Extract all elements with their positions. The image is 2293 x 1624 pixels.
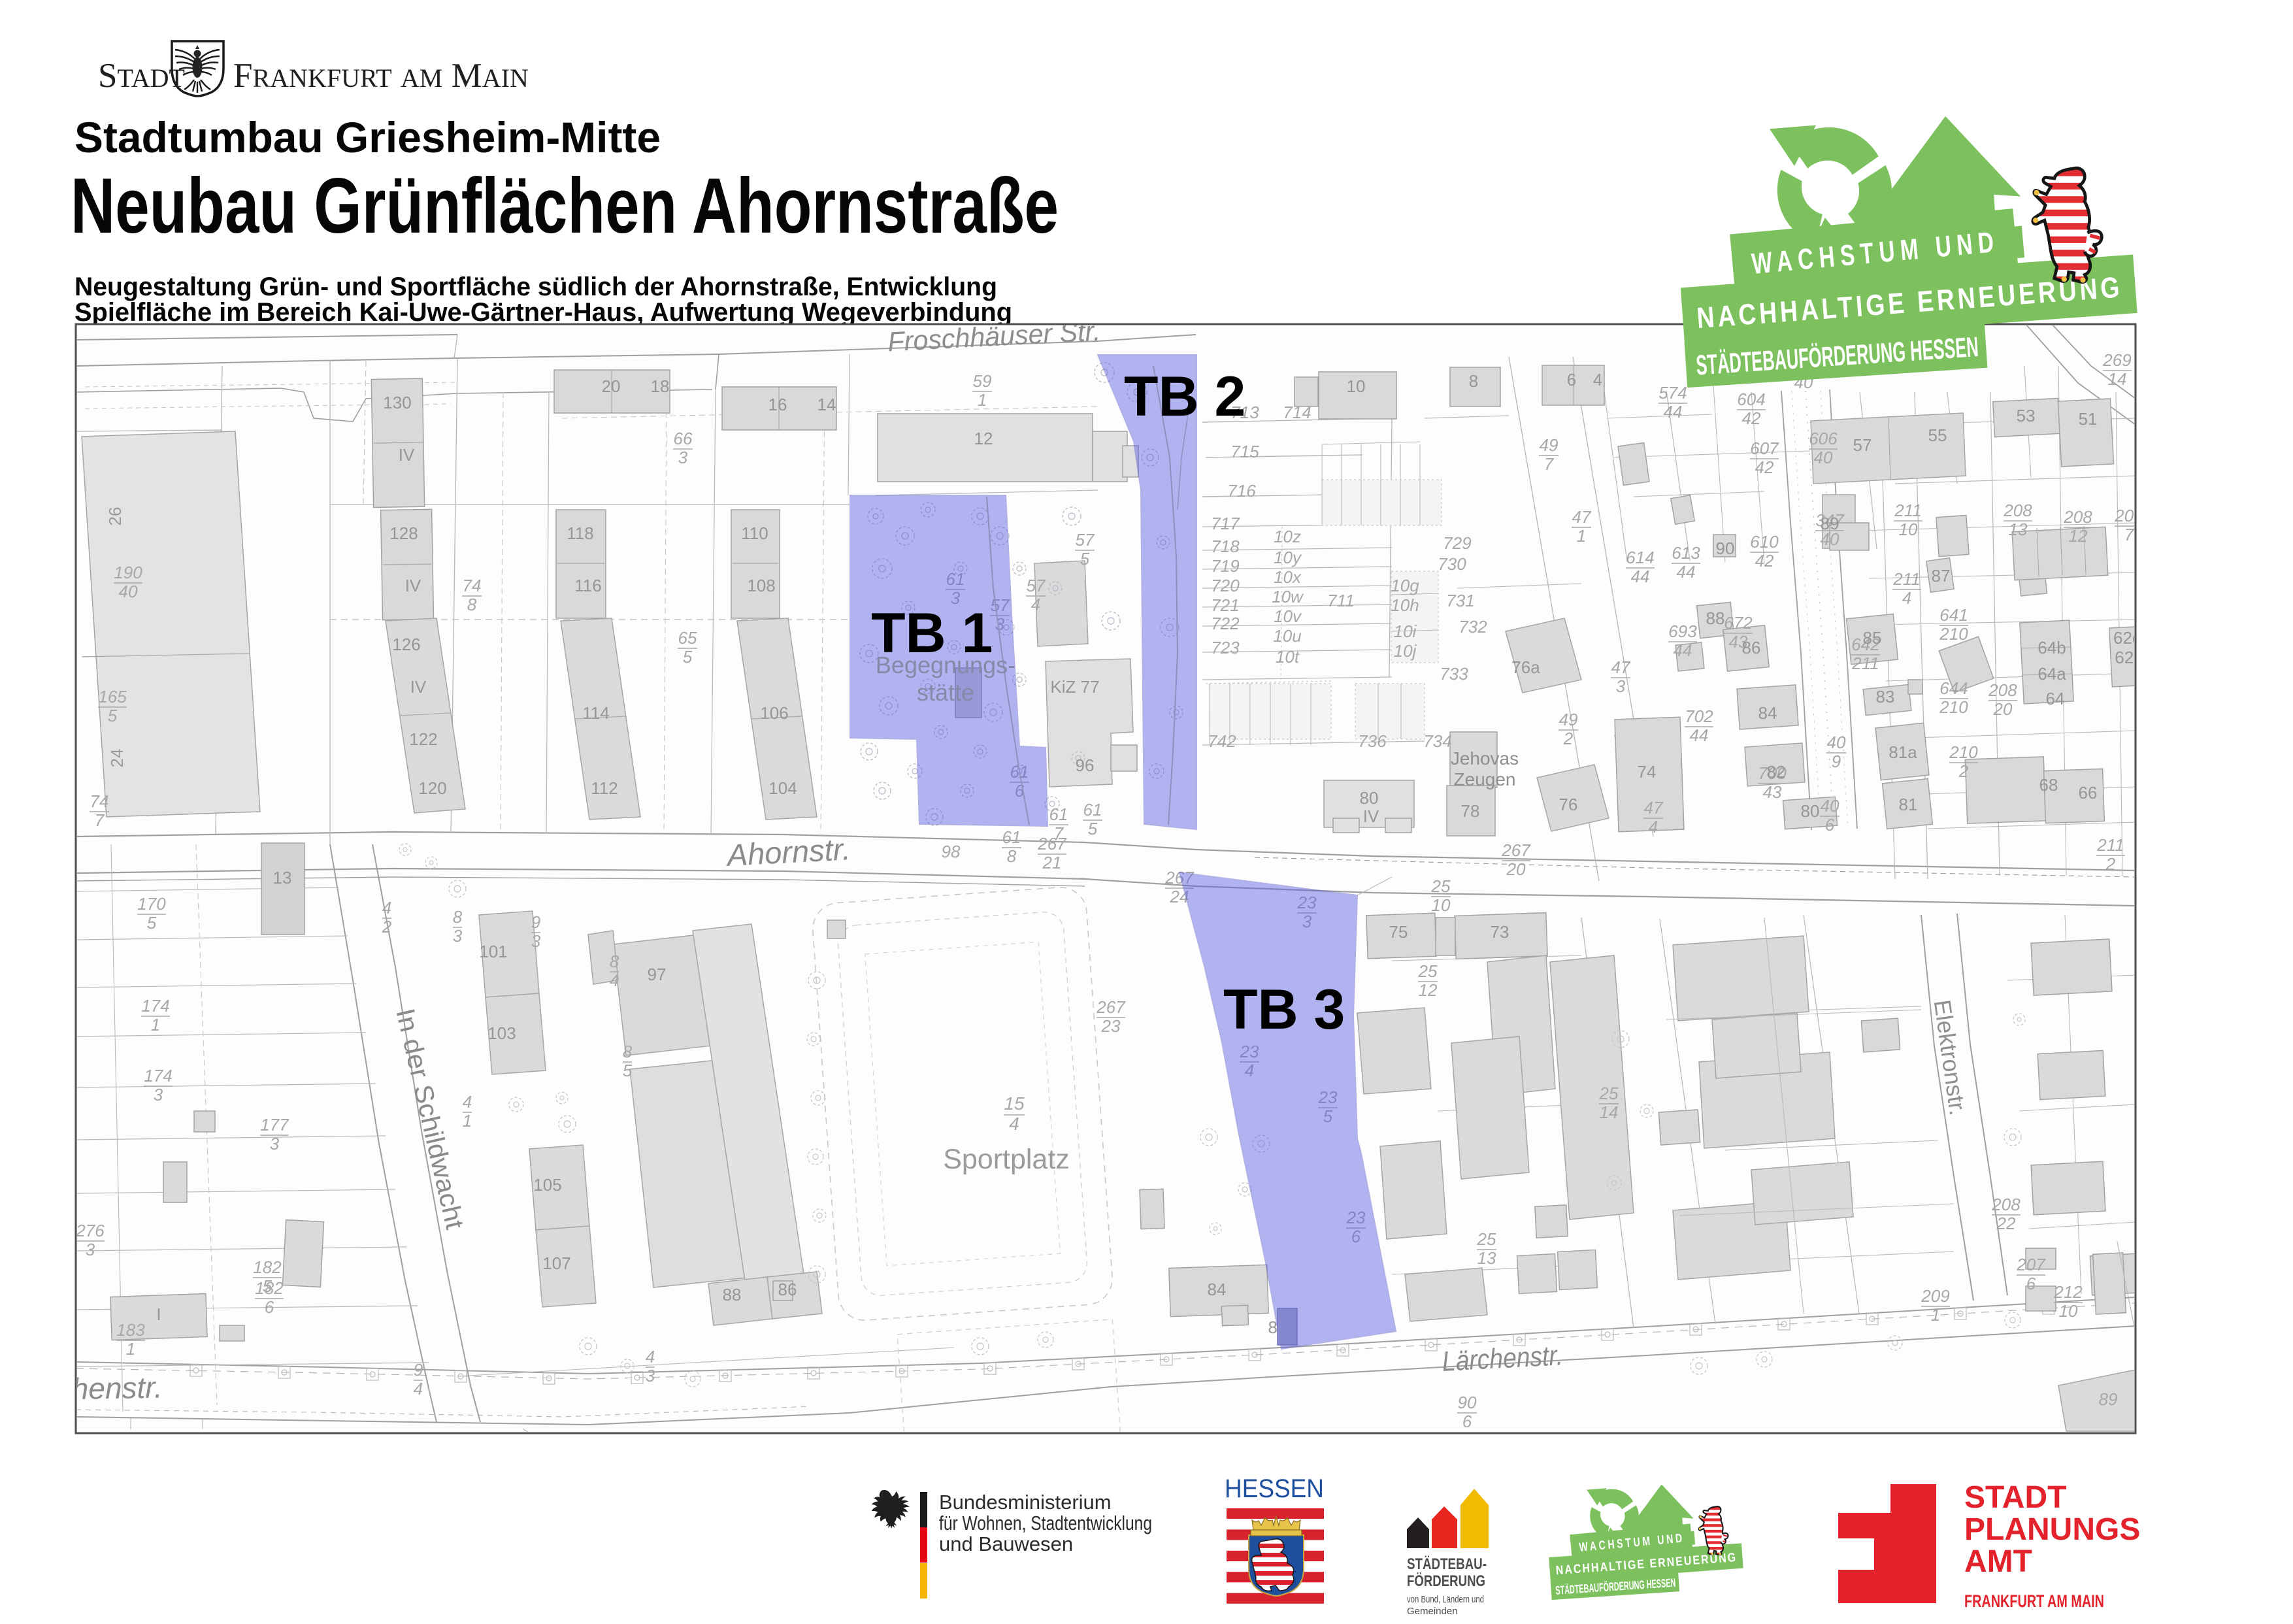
- svg-text:90: 90: [1458, 1393, 1477, 1412]
- svg-text:68: 68: [2039, 775, 2058, 795]
- svg-text:10x: 10x: [1274, 567, 1302, 587]
- svg-text:47: 47: [1611, 657, 1631, 677]
- svg-text:7: 7: [95, 810, 105, 830]
- svg-text:8: 8: [1469, 371, 1478, 391]
- svg-text:733: 733: [1440, 664, 1468, 684]
- svg-text:208: 208: [2063, 507, 2092, 527]
- svg-text:6: 6: [1462, 1412, 1472, 1431]
- svg-text:190: 190: [114, 563, 142, 582]
- svg-text:Zeugen: Zeugen: [1454, 769, 1516, 789]
- svg-text:75: 75: [1389, 922, 1408, 942]
- svg-text:64: 64: [2046, 689, 2065, 708]
- svg-text:64b: 64b: [2037, 638, 2066, 657]
- svg-text:TB 2: TB 2: [1124, 365, 1245, 428]
- svg-text:84: 84: [1758, 703, 1777, 723]
- svg-text:122: 122: [409, 729, 437, 749]
- svg-text:49: 49: [1540, 435, 1559, 455]
- svg-text:20: 20: [1506, 859, 1526, 879]
- svg-text:86: 86: [1742, 638, 1761, 657]
- svg-text:4: 4: [463, 1092, 472, 1112]
- svg-text:10: 10: [1432, 895, 1451, 915]
- svg-text:112: 112: [591, 778, 618, 798]
- svg-text:22: 22: [1996, 1214, 2016, 1233]
- svg-text:641: 641: [1939, 605, 1968, 625]
- svg-text:104: 104: [768, 778, 797, 798]
- svg-text:702: 702: [1685, 706, 1713, 726]
- svg-text:3: 3: [531, 931, 541, 951]
- svg-text:574: 574: [1658, 383, 1687, 403]
- svg-text:Ahornstr.: Ahornstr.: [724, 831, 851, 872]
- svg-text:604: 604: [1737, 389, 1765, 409]
- svg-text:65: 65: [678, 628, 697, 648]
- svg-text:4: 4: [1009, 1114, 1019, 1134]
- svg-text:716: 716: [1227, 481, 1256, 501]
- svg-text:742: 742: [1208, 731, 1236, 751]
- svg-text:87: 87: [1932, 566, 1951, 586]
- svg-text:Stadtumbau Griesheim-Mitte: Stadtumbau Griesheim-Mitte: [74, 113, 661, 161]
- svg-text:IV: IV: [405, 576, 421, 595]
- svg-text:57: 57: [1027, 576, 1046, 595]
- svg-text:8: 8: [610, 952, 619, 971]
- svg-text:209: 209: [1921, 1286, 1949, 1306]
- svg-text:211: 211: [1851, 654, 1879, 673]
- svg-text:128: 128: [389, 523, 418, 543]
- svg-text:610: 610: [1750, 532, 1779, 552]
- svg-text:4: 4: [382, 898, 391, 918]
- svg-text:44: 44: [1664, 402, 1683, 422]
- svg-text:74: 74: [463, 576, 482, 595]
- svg-text:267: 267: [1501, 840, 1531, 860]
- svg-text:729: 729: [1443, 533, 1471, 553]
- svg-text:49: 49: [1559, 710, 1578, 729]
- svg-text:12: 12: [1419, 980, 1438, 1000]
- svg-text:5: 5: [623, 1061, 633, 1080]
- svg-text:3: 3: [86, 1240, 95, 1259]
- svg-text:88: 88: [1706, 608, 1725, 628]
- svg-text:8: 8: [453, 907, 463, 927]
- svg-text:88: 88: [723, 1285, 742, 1304]
- svg-text:14: 14: [1600, 1102, 1619, 1122]
- svg-text:20: 20: [1993, 699, 2013, 719]
- svg-text:42: 42: [1742, 408, 1761, 428]
- svg-text:1: 1: [126, 1339, 135, 1359]
- svg-text:40: 40: [1814, 448, 1833, 467]
- svg-text:89: 89: [2099, 1389, 2118, 1409]
- svg-text:20: 20: [602, 376, 621, 396]
- svg-text:12: 12: [974, 429, 993, 448]
- svg-text:8: 8: [1007, 846, 1017, 866]
- svg-text:208: 208: [2003, 501, 2032, 520]
- svg-text:719: 719: [1211, 556, 1239, 576]
- svg-text:5: 5: [1080, 549, 1090, 569]
- svg-text:44: 44: [1674, 640, 1692, 660]
- svg-text:40: 40: [1821, 796, 1839, 816]
- svg-text:211: 211: [2096, 835, 2124, 855]
- svg-text:80: 80: [1801, 801, 1820, 821]
- svg-text:183: 183: [116, 1320, 145, 1340]
- svg-text:13: 13: [1477, 1248, 1496, 1268]
- svg-text:76a: 76a: [1511, 657, 1540, 677]
- svg-text:55: 55: [1928, 425, 1947, 445]
- svg-text:5: 5: [683, 647, 693, 667]
- svg-text:734: 734: [1423, 731, 1451, 751]
- svg-text:90: 90: [1716, 539, 1735, 558]
- svg-text:57: 57: [1853, 435, 1872, 455]
- svg-text:207: 207: [2016, 1255, 2046, 1274]
- svg-text:13: 13: [2009, 520, 2028, 539]
- svg-text:STADT: STADT: [1964, 1480, 2066, 1515]
- svg-text:16: 16: [768, 395, 787, 414]
- svg-text:732: 732: [1459, 617, 1487, 637]
- svg-text:5: 5: [108, 706, 118, 725]
- svg-text:6: 6: [265, 1297, 274, 1317]
- svg-text:736: 736: [1358, 731, 1387, 751]
- svg-text:101: 101: [479, 942, 507, 961]
- svg-text:208: 208: [1988, 680, 2017, 700]
- svg-text:44: 44: [1631, 567, 1650, 586]
- svg-text:2: 2: [2105, 854, 2116, 874]
- svg-text:42: 42: [1755, 457, 1774, 477]
- svg-text:Neugestaltung Grün- und Sportf: Neugestaltung Grün- und Sportfläche südl…: [74, 273, 997, 301]
- svg-text:715: 715: [1230, 442, 1259, 461]
- svg-text:25: 25: [1418, 961, 1438, 981]
- svg-text:3: 3: [270, 1134, 280, 1153]
- svg-text:Sportplatz: Sportplatz: [943, 1144, 1070, 1175]
- svg-text:4: 4: [1593, 370, 1602, 389]
- svg-text:212: 212: [2053, 1282, 2083, 1302]
- svg-text:81: 81: [1899, 795, 1918, 814]
- svg-text:10i: 10i: [1394, 621, 1417, 641]
- svg-text:42: 42: [1755, 551, 1774, 571]
- svg-text:8: 8: [467, 595, 477, 614]
- svg-text:stätte: stätte: [917, 679, 974, 706]
- svg-text:2: 2: [1563, 729, 1574, 748]
- svg-text:177: 177: [260, 1115, 289, 1135]
- svg-text:von Bund, Ländern und: von Bund, Ländern und: [1407, 1594, 1484, 1605]
- svg-text:74: 74: [1638, 762, 1657, 782]
- svg-text:FRANKFURT AM MAIN: FRANKFURT AM MAIN: [1964, 1591, 2104, 1611]
- svg-text:76: 76: [1559, 795, 1578, 814]
- svg-text:KiZ 77: KiZ 77: [1050, 677, 1099, 697]
- svg-text:66: 66: [674, 429, 693, 448]
- svg-text:Neubau Grünflächen Ahornstraße: Neubau Grünflächen Ahornstraße: [71, 162, 1059, 250]
- svg-text:7: 7: [2124, 525, 2135, 544]
- svg-text:TB 1: TB 1: [871, 602, 993, 665]
- svg-text:107: 107: [542, 1253, 570, 1273]
- svg-text:721: 721: [1211, 595, 1239, 615]
- svg-text:47: 47: [1644, 798, 1664, 818]
- svg-text:7: 7: [1054, 823, 1064, 843]
- svg-text:IV: IV: [399, 445, 415, 465]
- svg-text:TB 3: TB 3: [1223, 978, 1345, 1041]
- svg-text:210: 210: [1949, 742, 1978, 762]
- svg-text:43: 43: [1763, 782, 1782, 802]
- svg-text:614: 614: [1626, 548, 1654, 567]
- svg-text:40: 40: [1827, 733, 1846, 752]
- svg-text:78: 78: [1461, 801, 1480, 821]
- svg-text:170: 170: [137, 894, 166, 914]
- svg-text:10: 10: [1899, 520, 1918, 539]
- svg-text:1: 1: [1931, 1305, 1940, 1325]
- svg-text:722: 722: [1211, 614, 1240, 633]
- svg-text:61: 61: [1083, 800, 1102, 820]
- svg-text:711: 711: [1327, 591, 1354, 610]
- svg-text:5: 5: [1088, 819, 1098, 838]
- svg-text:10g: 10g: [1391, 576, 1419, 595]
- svg-text:84: 84: [1208, 1280, 1227, 1299]
- svg-text:FÖRDERUNG: FÖRDERUNG: [1407, 1572, 1485, 1590]
- svg-text:14: 14: [2108, 369, 2127, 389]
- svg-text:723: 723: [1211, 638, 1240, 657]
- svg-text:211: 211: [1892, 569, 1920, 589]
- svg-text:21: 21: [1042, 853, 1062, 872]
- svg-text:5: 5: [147, 913, 157, 933]
- svg-text:80: 80: [1360, 788, 1379, 808]
- svg-text:44: 44: [1677, 562, 1696, 582]
- svg-text:730: 730: [1438, 554, 1466, 574]
- svg-text:61: 61: [1049, 804, 1068, 824]
- svg-text:130: 130: [383, 393, 411, 412]
- svg-text:118: 118: [567, 523, 593, 543]
- svg-text:81a: 81a: [1889, 742, 1917, 762]
- svg-text:10t: 10t: [1276, 647, 1300, 667]
- svg-text:1: 1: [151, 1015, 160, 1035]
- svg-text:14: 14: [817, 395, 836, 414]
- svg-text:210: 210: [1939, 624, 1968, 644]
- svg-text:59: 59: [973, 371, 992, 391]
- svg-text:10h: 10h: [1391, 595, 1419, 615]
- svg-text:4: 4: [610, 970, 619, 990]
- svg-text:74: 74: [90, 791, 109, 811]
- svg-text:3: 3: [646, 1366, 655, 1385]
- svg-text:6: 6: [1825, 815, 1835, 835]
- svg-text:714: 714: [1283, 403, 1311, 422]
- svg-text:8: 8: [623, 1042, 633, 1061]
- svg-text:HESSEN: HESSEN: [1225, 1474, 1324, 1503]
- svg-text:IV: IV: [1363, 806, 1379, 826]
- svg-text:PLANUNGS: PLANUNGS: [1964, 1512, 2140, 1547]
- svg-text:693: 693: [1668, 621, 1697, 641]
- svg-text:25: 25: [1431, 876, 1451, 896]
- svg-text:210: 210: [1939, 697, 1968, 717]
- svg-text:IV: IV: [410, 677, 427, 697]
- svg-text:3: 3: [453, 926, 463, 946]
- svg-text:9: 9: [414, 1360, 423, 1380]
- svg-text:182: 182: [255, 1278, 284, 1298]
- svg-text:3: 3: [154, 1085, 163, 1104]
- svg-text:267: 267: [1096, 997, 1126, 1017]
- svg-text:73: 73: [1491, 922, 1509, 942]
- svg-text:103: 103: [487, 1023, 516, 1043]
- svg-text:3: 3: [1616, 676, 1626, 696]
- svg-text:9: 9: [531, 912, 540, 932]
- svg-text:718: 718: [1211, 537, 1240, 556]
- svg-text:12: 12: [2069, 526, 2088, 546]
- svg-text:25: 25: [1477, 1229, 1496, 1249]
- svg-text:114: 114: [582, 703, 609, 723]
- svg-text:1: 1: [978, 390, 987, 410]
- svg-text:Bundesministerium: Bundesministerium: [939, 1491, 1112, 1514]
- svg-text:57: 57: [1076, 530, 1095, 550]
- svg-text:1: 1: [1577, 526, 1586, 546]
- svg-text:98: 98: [942, 842, 961, 861]
- svg-text:I: I: [156, 1304, 161, 1324]
- svg-text:174: 174: [141, 996, 169, 1016]
- svg-text:61: 61: [1002, 827, 1021, 847]
- svg-text:182: 182: [253, 1257, 282, 1277]
- svg-text:165: 165: [98, 687, 127, 706]
- svg-text:1: 1: [463, 1111, 472, 1131]
- svg-text:613: 613: [1672, 543, 1700, 563]
- svg-text:und Bauwesen: und Bauwesen: [939, 1533, 1073, 1555]
- svg-text:89: 89: [1821, 514, 1839, 533]
- svg-text:Jehovas: Jehovas: [1451, 748, 1519, 769]
- svg-text:15: 15: [1004, 1093, 1025, 1114]
- svg-text:10z: 10z: [1274, 527, 1301, 546]
- svg-text:Spielfläche im Bereich Kai-Uwe: Spielfläche im Bereich Kai-Uwe-Gärtner-H…: [74, 298, 1012, 327]
- svg-text:720: 720: [1211, 576, 1240, 595]
- svg-text:25: 25: [1599, 1084, 1619, 1103]
- svg-text:717: 717: [1211, 514, 1240, 533]
- svg-text:672: 672: [1724, 613, 1753, 633]
- svg-text:116: 116: [574, 576, 601, 595]
- svg-text:6: 6: [1567, 370, 1576, 389]
- svg-text:26: 26: [105, 507, 125, 526]
- svg-text:18: 18: [651, 376, 670, 396]
- svg-text:24: 24: [107, 749, 127, 768]
- svg-text:644: 644: [1939, 678, 1968, 698]
- svg-text:53: 53: [2017, 406, 2036, 425]
- svg-text:120: 120: [418, 778, 446, 798]
- svg-text:110: 110: [741, 523, 768, 543]
- svg-text:3: 3: [678, 448, 688, 467]
- svg-text:174: 174: [144, 1066, 172, 1085]
- svg-text:40: 40: [119, 582, 138, 601]
- svg-text:97: 97: [648, 965, 667, 984]
- svg-text:4: 4: [1902, 588, 1911, 608]
- svg-text:106: 106: [760, 703, 788, 723]
- svg-text:9: 9: [1832, 752, 1841, 771]
- svg-text:10u: 10u: [1273, 626, 1301, 646]
- svg-text:10v: 10v: [1274, 606, 1302, 626]
- svg-text:10j: 10j: [1394, 641, 1417, 661]
- svg-text:83: 83: [1876, 687, 1895, 706]
- svg-text:7: 7: [1544, 454, 1555, 474]
- svg-text:44: 44: [1690, 725, 1709, 745]
- svg-text:Gemeinden: Gemeinden: [1407, 1606, 1458, 1617]
- svg-text:276: 276: [75, 1221, 105, 1240]
- svg-text:für Wohnen, Stadtentwicklung: für Wohnen, Stadtentwicklung: [939, 1512, 1152, 1534]
- svg-text:2: 2: [1958, 761, 1969, 781]
- svg-text:211: 211: [1894, 501, 1921, 520]
- svg-text:85: 85: [1863, 628, 1882, 648]
- svg-text:23: 23: [1101, 1016, 1121, 1036]
- svg-text:10: 10: [1347, 376, 1366, 396]
- svg-text:64a: 64a: [2037, 664, 2066, 684]
- svg-text:607: 607: [1750, 439, 1779, 458]
- svg-text:108: 108: [747, 576, 775, 595]
- svg-text:51: 51: [2079, 409, 2098, 429]
- svg-text:6: 6: [2026, 1274, 2036, 1293]
- svg-text:10: 10: [2059, 1301, 2078, 1321]
- svg-text:731: 731: [1446, 591, 1474, 610]
- svg-text:82: 82: [1767, 762, 1786, 782]
- svg-text:4: 4: [1031, 595, 1040, 614]
- svg-text:66: 66: [2079, 783, 2098, 803]
- svg-text:Lärchenstr.: Lärchenstr.: [1442, 1340, 1564, 1378]
- svg-text:2: 2: [382, 917, 392, 936]
- svg-text:126: 126: [392, 635, 420, 654]
- svg-text:STÄDTEBAU-: STÄDTEBAU-: [1407, 1555, 1487, 1573]
- svg-text:105: 105: [533, 1175, 561, 1195]
- svg-text:10y: 10y: [1274, 548, 1302, 567]
- svg-text:4: 4: [646, 1347, 655, 1367]
- svg-text:AMT: AMT: [1964, 1544, 2032, 1579]
- svg-text:86: 86: [778, 1280, 797, 1299]
- svg-text:96: 96: [1076, 755, 1095, 775]
- svg-text:269: 269: [2102, 350, 2131, 370]
- svg-text:47: 47: [1572, 507, 1592, 527]
- svg-text:13: 13: [273, 868, 292, 887]
- svg-text:4: 4: [1649, 817, 1658, 837]
- svg-text:606: 606: [1809, 429, 1838, 448]
- svg-text:4: 4: [414, 1379, 423, 1399]
- svg-text:10w: 10w: [1272, 587, 1304, 606]
- svg-text:208: 208: [1991, 1195, 2021, 1214]
